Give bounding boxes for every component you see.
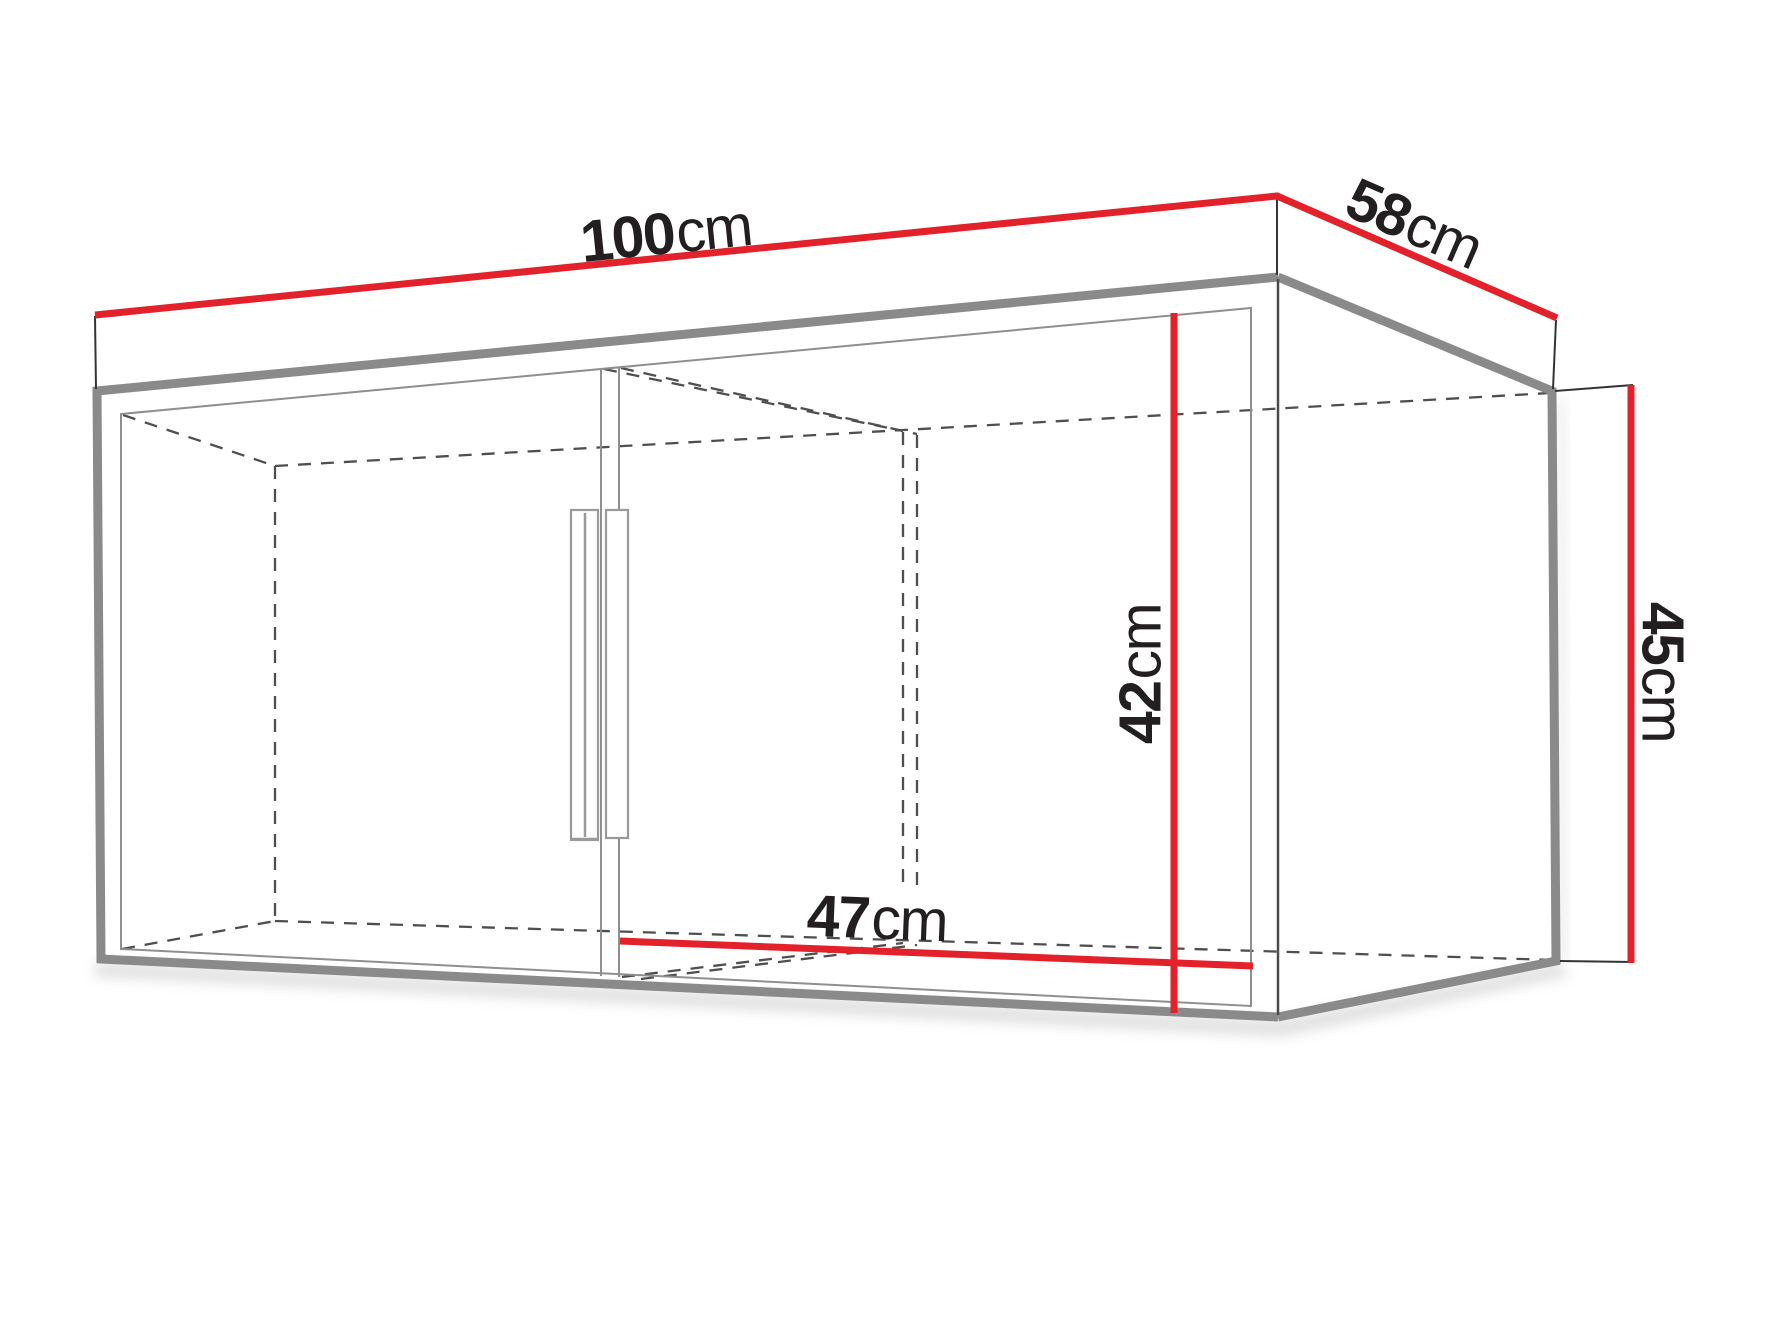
inner-height-unit: cm xyxy=(1108,604,1174,680)
height-dimension-label: 45cm xyxy=(1633,602,1692,742)
interior-back-top-edge xyxy=(275,393,1550,466)
inner-height-dimension-label: 42cm xyxy=(1112,604,1171,744)
interior-top-left-receding-edge xyxy=(123,415,275,466)
partition-top-left-receding-edge xyxy=(604,369,903,431)
right-door-handle xyxy=(606,510,628,838)
cabinet-line-drawing xyxy=(0,0,1784,1338)
inner-depth-value: 47 xyxy=(806,883,871,951)
height-value: 45 xyxy=(1630,602,1696,665)
width-value: 100 xyxy=(577,200,677,275)
partition-top-right-receding-edge xyxy=(621,368,917,434)
front-inner-frame xyxy=(121,308,1251,1006)
inner-height-value: 42 xyxy=(1108,682,1174,745)
side-face-outline xyxy=(1278,277,1556,1017)
interior-bottom-left-receding-edge xyxy=(122,921,275,949)
inner-depth-unit: cm xyxy=(870,885,948,954)
inner-depth-dimension-label: 47cm xyxy=(806,887,949,952)
width-unit: cm xyxy=(673,192,755,265)
door-handles xyxy=(571,510,628,840)
height-unit: cm xyxy=(1630,666,1696,742)
dimension-diagram: 100cm 58cm 45cm 42cm 47cm xyxy=(0,0,1784,1338)
